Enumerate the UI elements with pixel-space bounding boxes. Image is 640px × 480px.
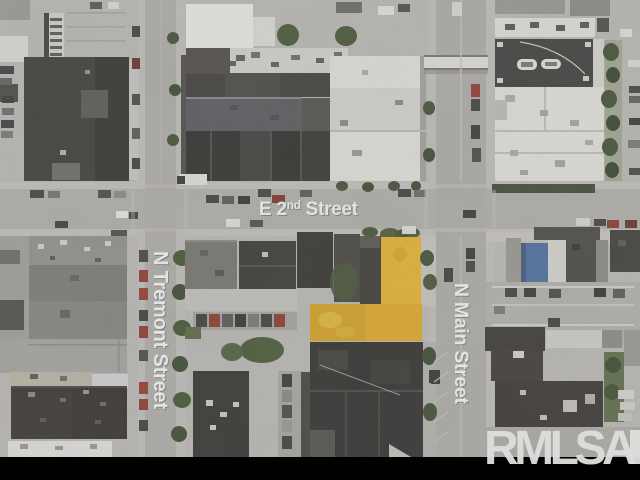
svg-text:RMLSA: RMLSA (484, 422, 636, 475)
